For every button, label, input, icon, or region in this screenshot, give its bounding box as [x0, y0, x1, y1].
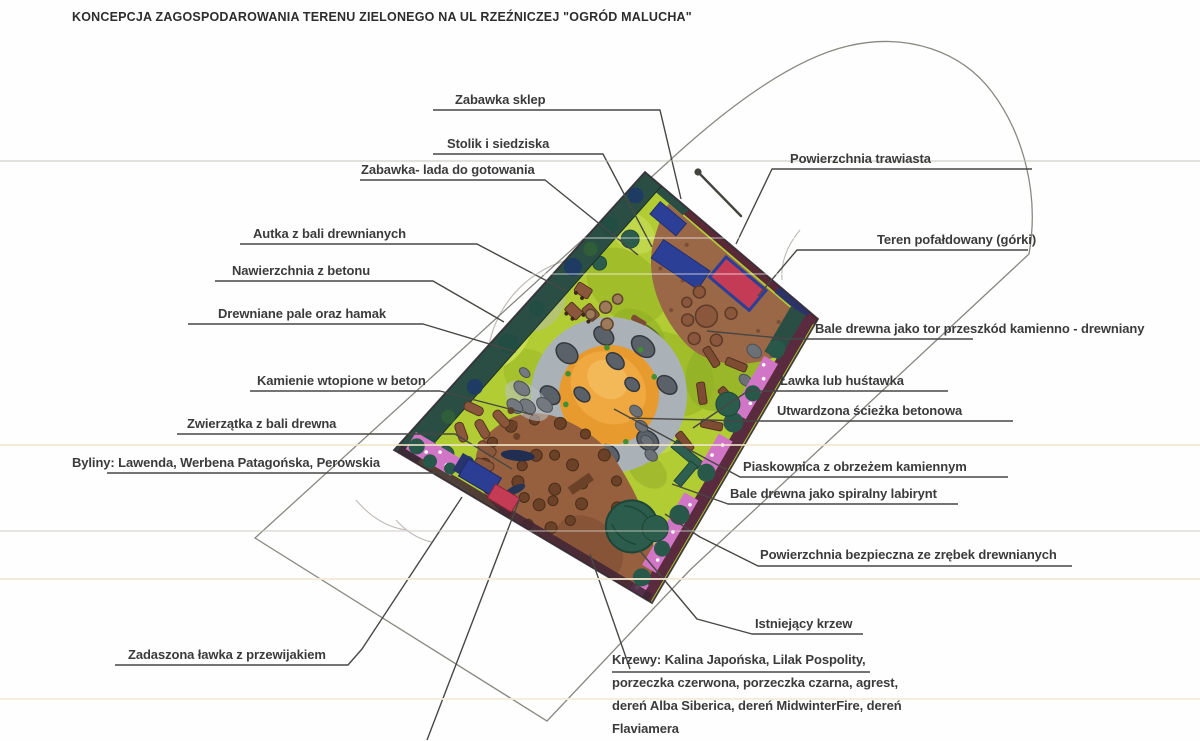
- label-utwardzona-sciezka: Utwardzona ścieżka betonowa: [777, 404, 962, 419]
- leader-byliny: [107, 473, 468, 492]
- leader-zadaszona: [115, 497, 462, 665]
- leader-bottom-extra: [427, 498, 520, 740]
- label-lawka-hustawka: Ławka lub huśtawka: [780, 374, 904, 389]
- label-zabawka-sklep: Zabawka sklep: [455, 93, 545, 108]
- label-istniejacy-krzew: Istniejący krzew: [755, 617, 852, 632]
- label-zabawka-lada: Zabawka- lada do gotowania: [361, 163, 535, 178]
- north-arrow-icon: [694, 168, 741, 216]
- label-krzewy-line2: porzeczka czerwona, porzeczka czarna, ag…: [612, 676, 898, 691]
- label-krzewy-line3: dereń Alba Siberica, dereń MidwinterFire…: [612, 699, 902, 714]
- label-kamienie: Kamienie wtopione w beton: [257, 374, 426, 389]
- label-bale-labirynt: Bale drewna jako spiralny labirynt: [730, 487, 937, 502]
- label-stolik-siedziska: Stolik i siedziska: [447, 137, 549, 152]
- label-powierzchnia-bezpieczna: Powierzchnia bezpieczna ze zrębek drewni…: [760, 548, 1057, 563]
- label-byliny: Byliny: Lawenda, Werbena Patagońska, Per…: [72, 456, 380, 471]
- concept-plan-document: KONCEPCJA ZAGOSPODAROWANIA TERENU ZIELON…: [0, 0, 1200, 741]
- label-nawierzchnia-betonu: Nawierzchnia z betonu: [232, 264, 370, 279]
- site-plan-drawing: [0, 0, 1200, 741]
- label-bale-tor: Bale drewna jako tor przeszkód kamienno …: [815, 322, 1144, 337]
- label-autka: Autka z bali drewnianych: [253, 227, 406, 242]
- leader-teren: [758, 250, 1028, 296]
- label-krzewy-line1: Krzewy: Kalina Japońska, Lilak Pospolity…: [612, 653, 866, 668]
- label-zwierzatka: Zwierzątka z bali drewna: [187, 417, 336, 432]
- label-zadaszona-lawka: Zadaszona ławka z przewijakiem: [128, 648, 326, 663]
- label-piaskownica: Piaskownica z obrzeżem kamiennym: [743, 460, 967, 475]
- label-krzewy-line4: Flaviamera: [612, 722, 679, 737]
- label-teren-pofaldowany: Teren pofałdowany (górki): [877, 233, 1036, 248]
- page-title: KONCEPCJA ZAGOSPODAROWANIA TERENU ZIELON…: [72, 10, 692, 24]
- leader-pale: [188, 324, 516, 352]
- label-drewniane-pale: Drewniane pale oraz hamak: [218, 307, 386, 322]
- label-powierzchnia-trawiasta: Powierzchnia trawiasta: [790, 152, 931, 167]
